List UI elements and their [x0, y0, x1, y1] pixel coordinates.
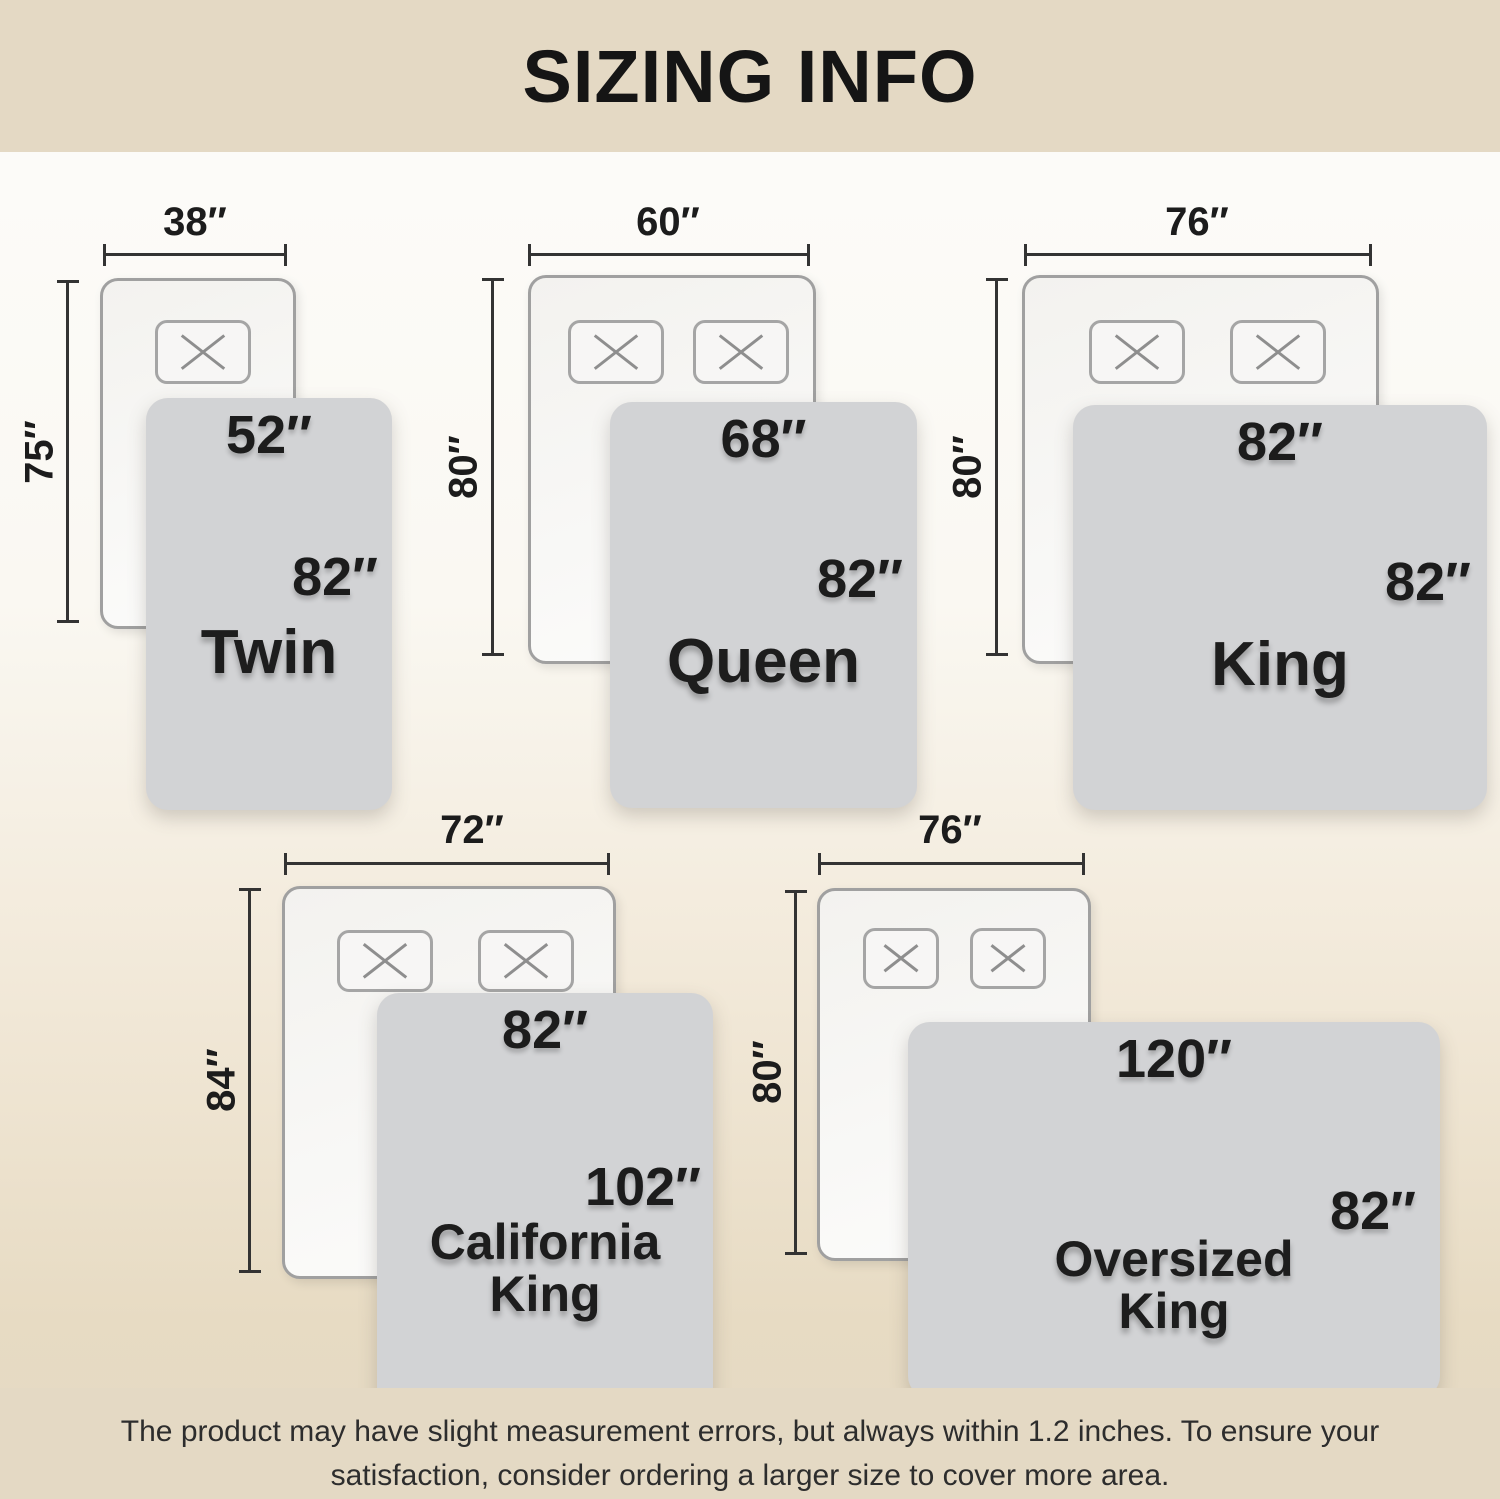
dimension-tick — [1082, 853, 1085, 875]
oversized-king-blanket: 120″ 82″ Oversized King — [908, 1022, 1440, 1398]
dimension-tick — [785, 890, 807, 893]
oversized-king-width-dimension-line — [818, 862, 1085, 865]
pillow-x-icon — [880, 939, 922, 979]
size-name-line1: Oversized — [908, 1233, 1440, 1286]
oversized-king-mattress-length-label: 80″ — [746, 1040, 791, 1104]
dimension-tick — [785, 1252, 807, 1255]
pillow-icon — [863, 928, 939, 989]
oversized-king-mattress-width-label: 76″ — [918, 808, 982, 853]
size-name-line2: King — [908, 1285, 1440, 1338]
footer-disclaimer-line1: The product may have slight measurement … — [0, 1410, 1500, 1454]
diagram-oversized-king: 76″ 80″ 120″ 82″ Oversized King — [0, 0, 1500, 1499]
dimension-tick — [818, 853, 821, 875]
pillow-x-icon — [987, 939, 1029, 979]
pillow-icon — [970, 928, 1046, 989]
oversized-king-length-dimension-line — [794, 890, 797, 1255]
sizing-info-page: SIZING INFO 38″ 75″ 52″ 82″ Twin 60″ 80″… — [0, 0, 1500, 1499]
oversized-king-blanket-width-label: 120″ — [1116, 1028, 1232, 1090]
oversized-king-size-name: Oversized King — [908, 1233, 1440, 1338]
footer-disclaimer-line2: satisfaction, consider ordering a larger… — [0, 1454, 1500, 1498]
footer-disclaimer: The product may have slight measurement … — [0, 1410, 1500, 1497]
